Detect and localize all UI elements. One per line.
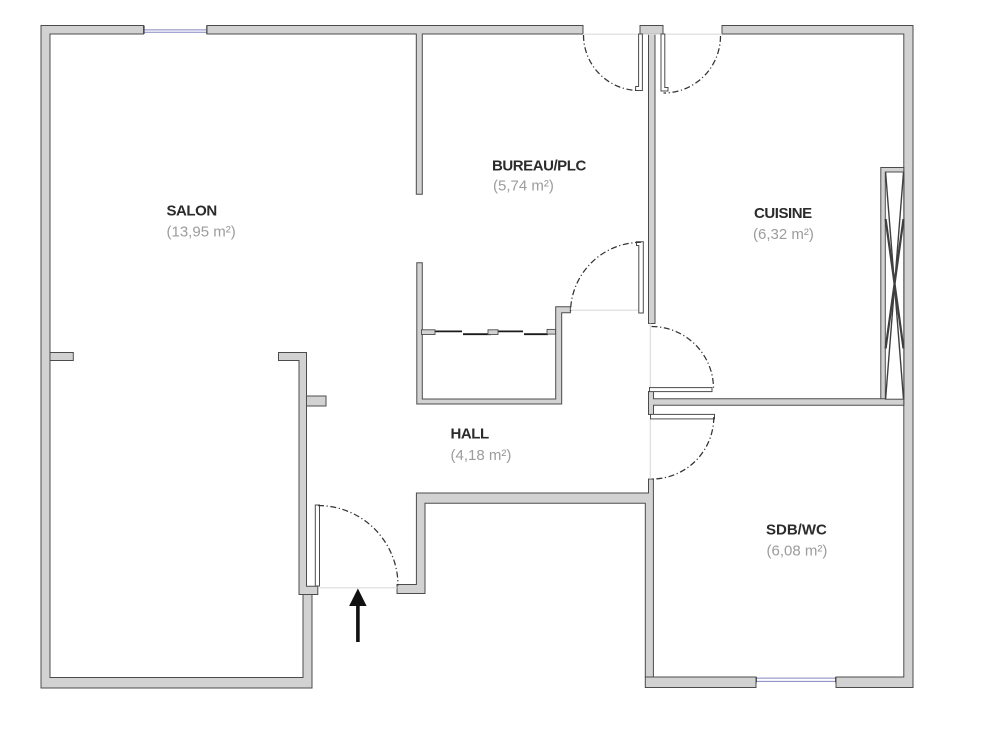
svg-text:(13,95 m²): (13,95 m²) (167, 224, 236, 241)
svg-text:(6,32 m²): (6,32 m²) (753, 226, 814, 243)
svg-text:HALL: HALL (451, 426, 489, 443)
svg-text:(4,18 m²): (4,18 m²) (451, 447, 512, 464)
svg-text:(6,08 m²): (6,08 m²) (767, 543, 828, 560)
svg-text:BUREAU/PLC: BUREAU/PLC (492, 158, 586, 175)
svg-text:CUISINE: CUISINE (754, 205, 812, 222)
svg-text:SDB/WC: SDB/WC (766, 522, 827, 539)
svg-text:SALON: SALON (167, 203, 217, 220)
svg-text:(5,74 m²): (5,74 m²) (493, 178, 554, 195)
